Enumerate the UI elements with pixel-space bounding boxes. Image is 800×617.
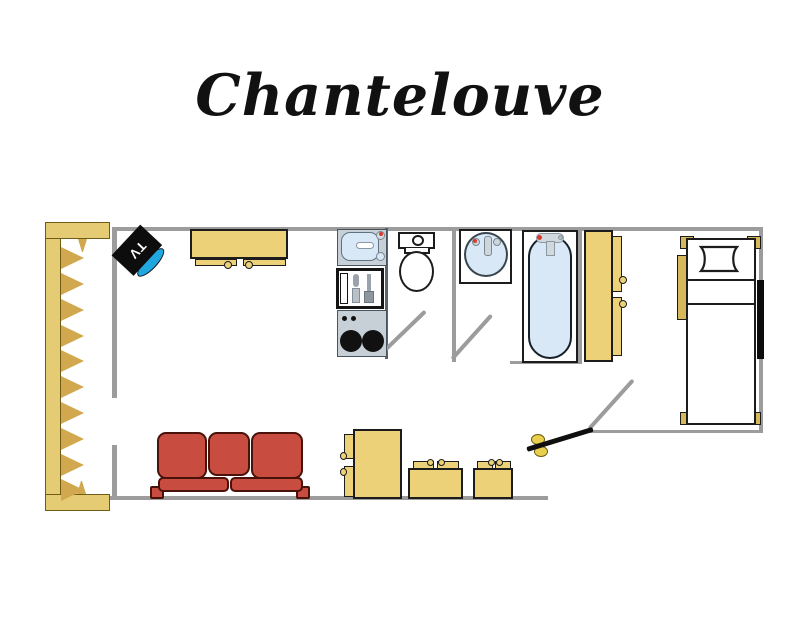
railing-hatch-bottom (77, 481, 86, 494)
railing-hatch (61, 350, 84, 372)
wardrobe-knob (619, 276, 627, 284)
sofa-back-cushion (157, 432, 207, 479)
cabinet-knob (340, 452, 347, 460)
kitchen-sink-handle (356, 242, 374, 249)
washbasin-hot-dot (473, 239, 477, 243)
stool (473, 468, 513, 499)
sofa-seat-cushion (158, 477, 229, 492)
wall-bathroom-right (578, 228, 582, 364)
railing-hatch (61, 273, 84, 295)
balcony-railing-left (45, 222, 61, 511)
wardrobe-knob (619, 300, 627, 308)
sofa-seat-cushion (230, 477, 303, 492)
sideboard (190, 229, 288, 259)
railing-hatch (61, 402, 84, 424)
storage-cabinet (353, 429, 402, 499)
stool (408, 468, 463, 499)
stove-burner (340, 330, 362, 352)
stool-knob (488, 459, 495, 466)
radiator (757, 280, 764, 359)
tv-label: TV (125, 238, 149, 262)
bedside-rail (677, 255, 687, 320)
bathtub-cold-dot (558, 235, 563, 240)
utensil-cabinet-panel (340, 273, 348, 304)
shower-door-swing (451, 314, 493, 361)
wardrobe (584, 230, 613, 362)
utensil-brush (364, 291, 374, 303)
stool-knob (496, 459, 503, 466)
bathtub-hot-dot (537, 235, 542, 240)
toilet-bowl (399, 251, 434, 292)
tv-body: TV (112, 225, 163, 276)
sideboard-knob (224, 261, 232, 269)
railing-hatch (61, 428, 84, 450)
tv-unit: TV (110, 223, 174, 287)
sofa-back-cushion (208, 432, 250, 476)
railing-hatch (61, 376, 84, 398)
stove-knob (351, 316, 356, 321)
stool-knob (438, 459, 445, 466)
plan-title: Chantelouve (0, 62, 800, 129)
utensil-stem (367, 274, 371, 291)
floor-plan-page: Chantelouve TV (0, 0, 800, 617)
railing-hatch (61, 299, 84, 321)
cabinet-knob (340, 468, 347, 476)
washbasin-faucet (484, 236, 492, 256)
sideboard-knob (245, 261, 253, 269)
railing-hatch (61, 454, 84, 476)
bed-sheet-line (688, 279, 754, 281)
railing-hatch-top (78, 239, 87, 252)
wall-bottom-right (590, 430, 763, 433)
stove-knob (342, 316, 347, 321)
washbasin-knob (493, 238, 501, 246)
toilet-flush-button (412, 235, 424, 246)
stool-knob (427, 459, 434, 466)
bathtub-faucet-stem (546, 241, 555, 256)
wall-wc-divider (452, 228, 456, 362)
kitchen-sink-hot-dot (379, 232, 383, 236)
balcony-railing-top (45, 222, 110, 239)
wall-left-lower (112, 445, 117, 500)
pillow (697, 244, 741, 274)
entry-door-swing (588, 379, 635, 431)
utensil-blade (352, 288, 360, 303)
bed-sheet-line (688, 303, 754, 305)
stove-burner (362, 330, 384, 352)
railing-hatch (61, 325, 84, 347)
utensil-handle (353, 274, 359, 287)
sofa-back-cushion (251, 432, 303, 479)
kitchen-sink-knob (376, 252, 385, 261)
